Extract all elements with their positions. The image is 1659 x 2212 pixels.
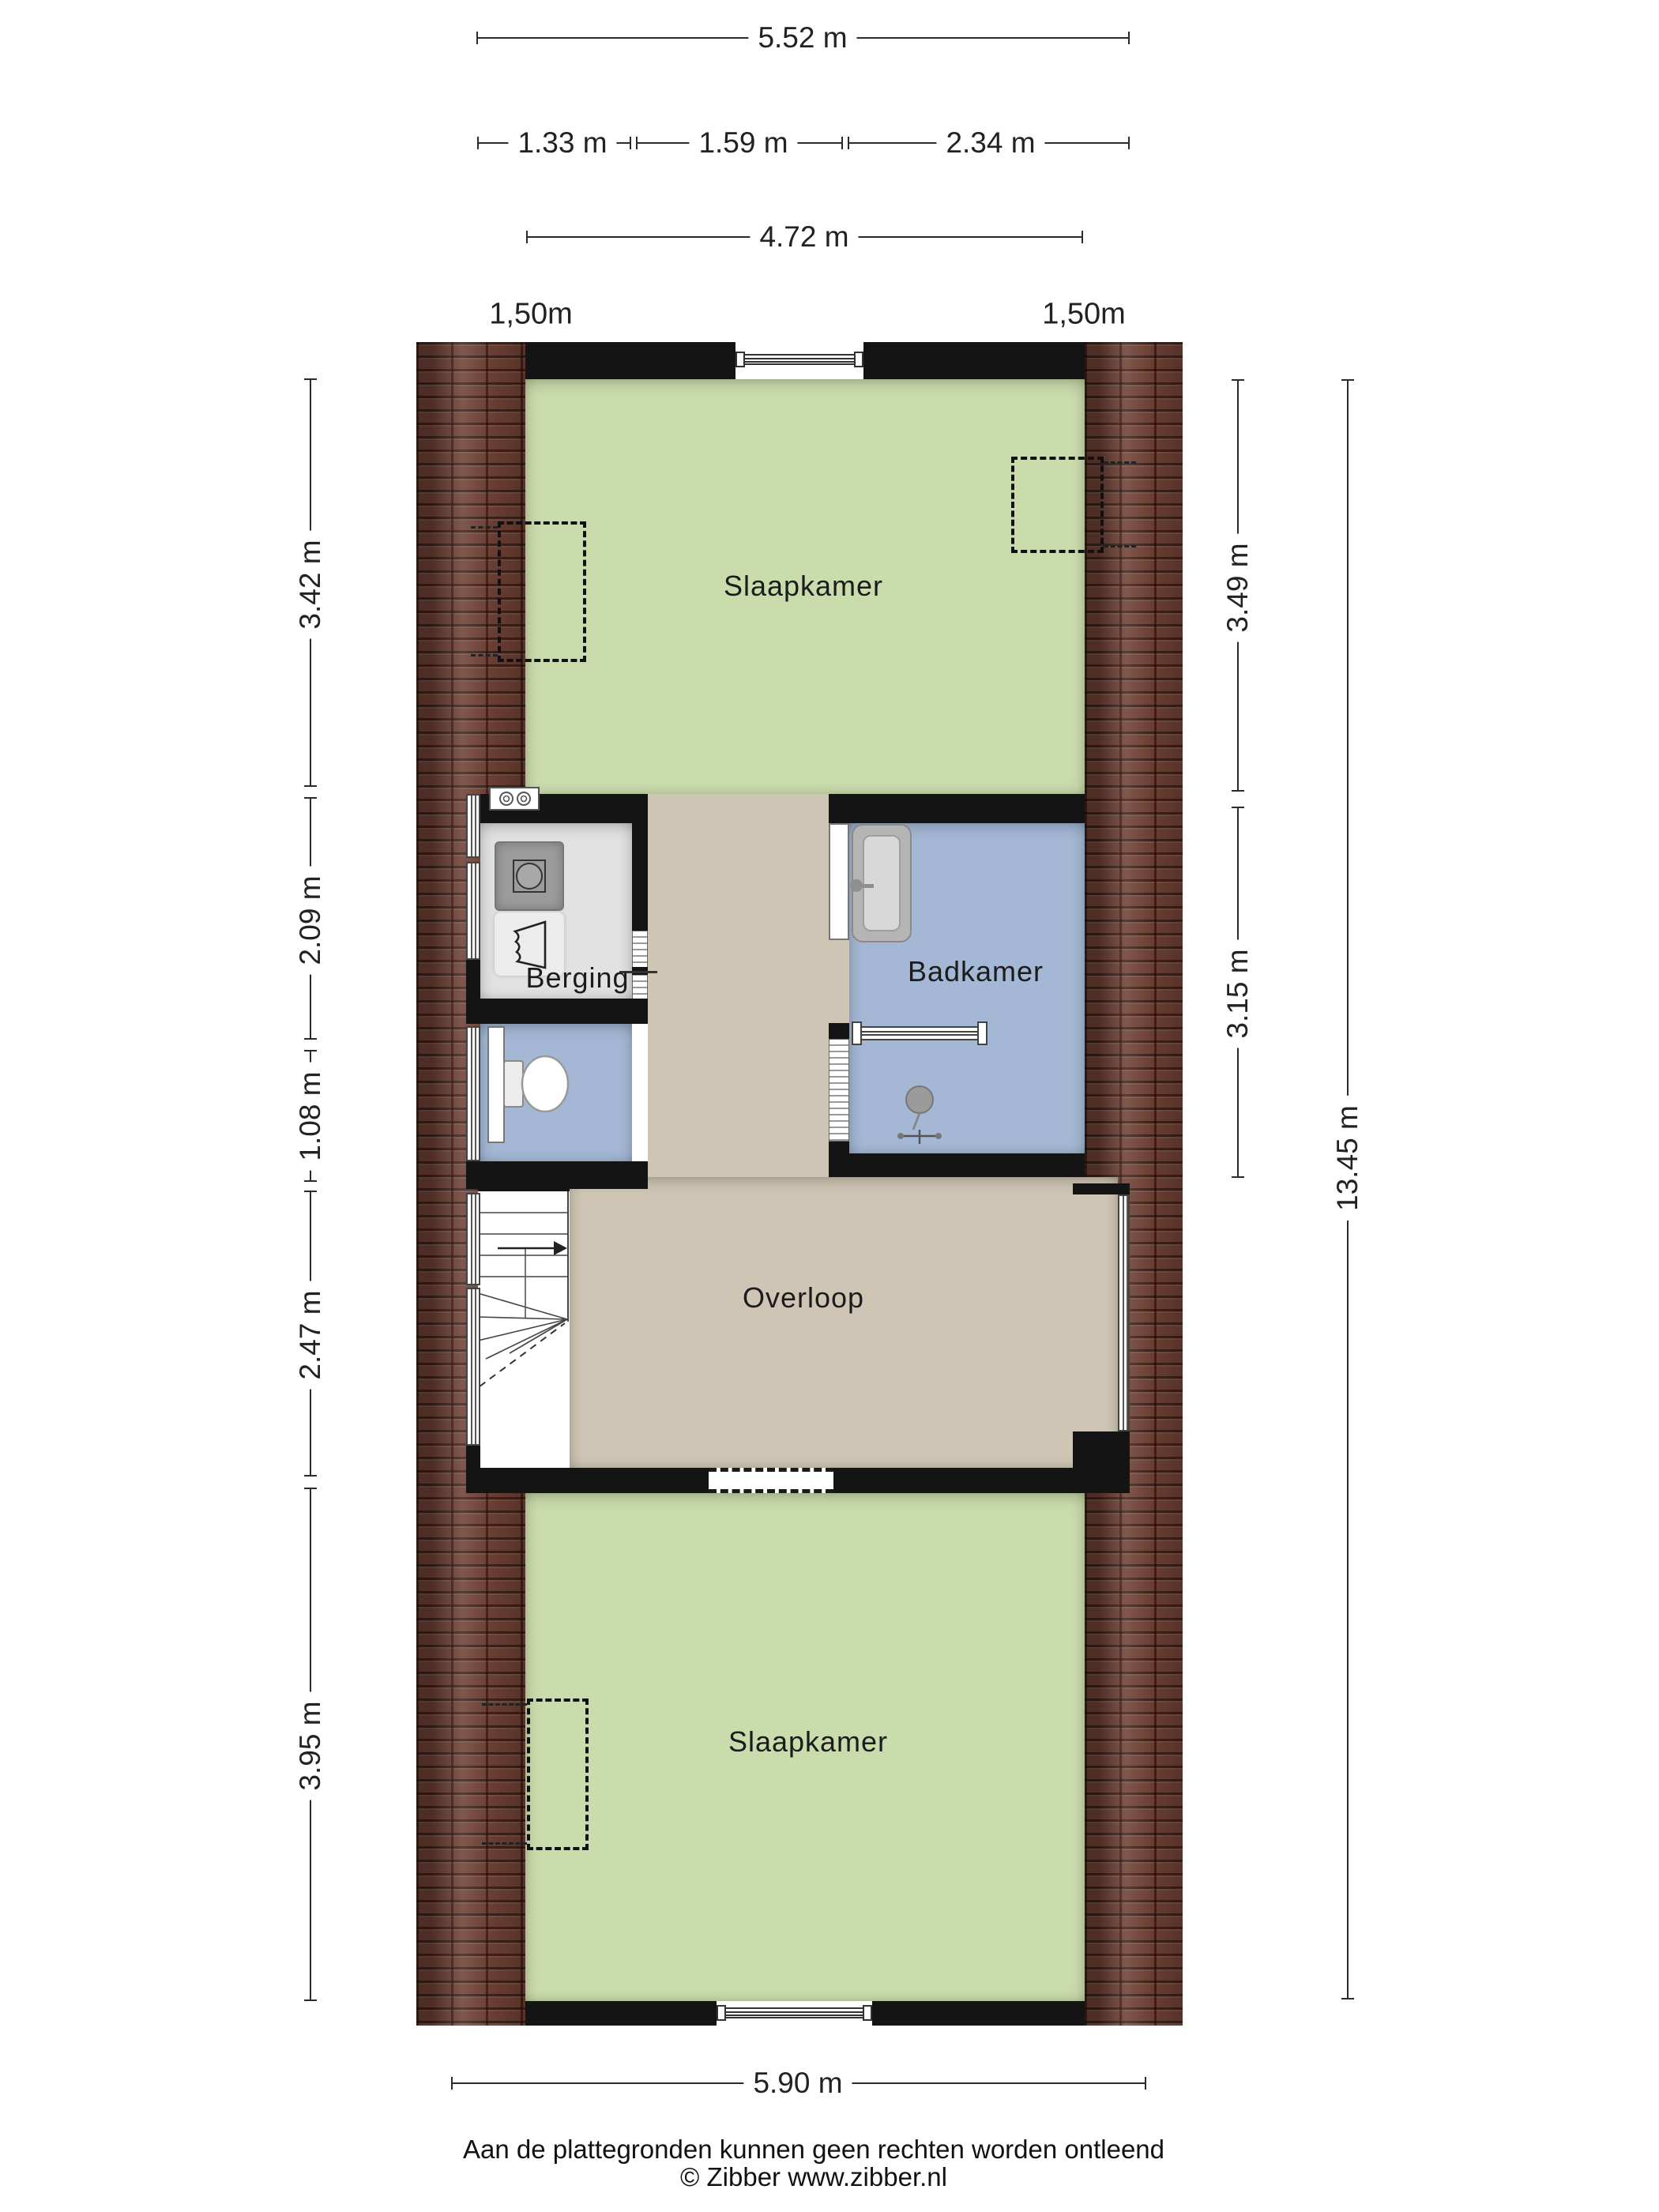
dim-tick	[841, 137, 843, 149]
dormer-ext-line	[471, 526, 498, 529]
wall-bathroom-bottom	[829, 1153, 1085, 1177]
wall-left-filler-1	[466, 960, 480, 999]
dim-label-right-seg2: 3.15 m	[1221, 939, 1255, 1048]
bottom-window	[717, 2001, 872, 2026]
dim-tick	[304, 785, 317, 787]
wall-bathroom-left-stub	[829, 1023, 849, 1039]
slope-window-toilet	[466, 1026, 480, 1161]
bottom-window-frame-icon	[717, 2007, 872, 2018]
top-window	[735, 342, 863, 379]
slope-window-storage-2	[466, 862, 480, 960]
dim-tick	[1145, 2077, 1146, 2090]
radiator-icon	[852, 1021, 987, 1045]
dim-tick	[526, 231, 528, 243]
dim-tick	[304, 797, 317, 799]
dim-tick	[1232, 379, 1244, 381]
slope-window-stairs-1	[466, 1193, 480, 1285]
landing-floor	[570, 1177, 1118, 1468]
dim-label-left-seg1: 3.42 m	[294, 530, 327, 638]
dim-tick	[304, 1488, 317, 1489]
wall-left-filler-2	[466, 1446, 480, 1468]
dim-tick	[1128, 137, 1130, 149]
dormer-dashed-outline-top-left	[498, 521, 586, 662]
dormer-ext-line	[471, 654, 498, 656]
room-label-bedroom-top: Slaapkamer	[724, 570, 883, 603]
slope-window-stairs-2	[466, 1288, 480, 1446]
wall-landing-right-top	[1073, 1183, 1130, 1194]
wall-toilet-bottom	[466, 1161, 648, 1189]
dim-tick	[1082, 231, 1083, 243]
wall-bathroom-top	[829, 794, 1085, 823]
room-label-landing: Overloop	[743, 1281, 864, 1315]
dim-label-left-seg5: 3.95 m	[294, 1691, 327, 1800]
room-label-bathroom: Badkamer	[908, 955, 1044, 988]
dim-tick	[1128, 32, 1130, 44]
dim-tick	[304, 1038, 317, 1040]
landing-corridor-floor	[648, 794, 829, 1189]
dim-label-top-total: 5.52 m	[748, 21, 856, 55]
dim-label-top-inner: 4.72 m	[750, 220, 858, 254]
dim-tick	[636, 137, 638, 149]
slope-window-storage-1	[466, 794, 480, 858]
dim-tick	[1341, 379, 1354, 381]
wall-storage-bottom	[466, 999, 648, 1024]
dim-tick	[1232, 790, 1244, 792]
dormer-ext-line	[482, 1842, 527, 1845]
shower-icon	[894, 1081, 942, 1147]
dim-tick	[476, 32, 478, 44]
dormer-ext-line	[1104, 461, 1136, 464]
washing-machine-icon	[495, 841, 564, 911]
stairs	[478, 1189, 570, 1468]
dim-tick	[451, 2077, 453, 2090]
bathroom-glass-panel	[829, 1039, 849, 1142]
dim-tick	[630, 137, 631, 149]
dormer-ext-line	[482, 1703, 527, 1706]
toilet-icon	[498, 1051, 577, 1118]
headroom-label-left: 1,50m	[489, 298, 573, 332]
stairs-icon	[478, 1189, 570, 1468]
washbasin-icon	[852, 824, 912, 942]
dim-tick	[304, 1475, 317, 1477]
dim-tick	[304, 1180, 317, 1182]
top-window-frame-icon	[735, 354, 863, 365]
landing-dormer-window	[1118, 1194, 1130, 1431]
footer-disclaimer: Aan de plattegronden kunnen geen rechten…	[0, 2135, 1627, 2165]
dim-tick	[304, 378, 317, 380]
dim-label-top-seg1: 1.33 m	[508, 126, 616, 160]
ventilation-unit-icon	[489, 787, 540, 811]
footer-copyright: © Zibber www.zibber.nl	[0, 2162, 1627, 2192]
dim-tick	[304, 1191, 317, 1192]
dormer-dashed-outline-top-right	[1011, 457, 1104, 553]
bathroom-door-opening-floor	[829, 940, 849, 1023]
dim-tick	[1232, 807, 1244, 808]
dim-tick	[1341, 1998, 1354, 1999]
dim-label-top-seg3: 2.34 m	[936, 126, 1044, 160]
dim-tick	[477, 137, 479, 149]
bathroom-door	[829, 823, 849, 940]
dim-label-left-seg2: 2.09 m	[294, 866, 327, 974]
room-label-bedroom-bottom: Slaapkamer	[728, 1725, 888, 1759]
dim-label-left-seg3: 1.08 m	[294, 1062, 327, 1170]
dormer-dashed-outline-bottom-left	[527, 1698, 589, 1850]
dim-tick	[304, 1999, 317, 2001]
room-label-storage: Berging	[525, 961, 629, 995]
dormer-ext-line	[1104, 545, 1136, 547]
dim-label-top-seg2: 1.59 m	[689, 126, 797, 160]
dim-tick	[848, 137, 849, 149]
dim-tick	[304, 1050, 317, 1051]
dim-label-bottom-total: 5.90 m	[743, 2067, 852, 2100]
dim-label-right-total: 13.45 m	[1331, 1096, 1364, 1221]
floorplan-page: Slaapkamer Berging Badkamer Overloop Sla…	[0, 0, 1659, 2212]
headroom-label-right: 1,50m	[1042, 298, 1126, 332]
dim-tick	[1232, 1176, 1244, 1178]
interior-window	[709, 1468, 833, 1493]
dim-label-right-seg1: 3.49 m	[1221, 533, 1255, 641]
dim-label-left-seg4: 2.47 m	[294, 1281, 327, 1389]
